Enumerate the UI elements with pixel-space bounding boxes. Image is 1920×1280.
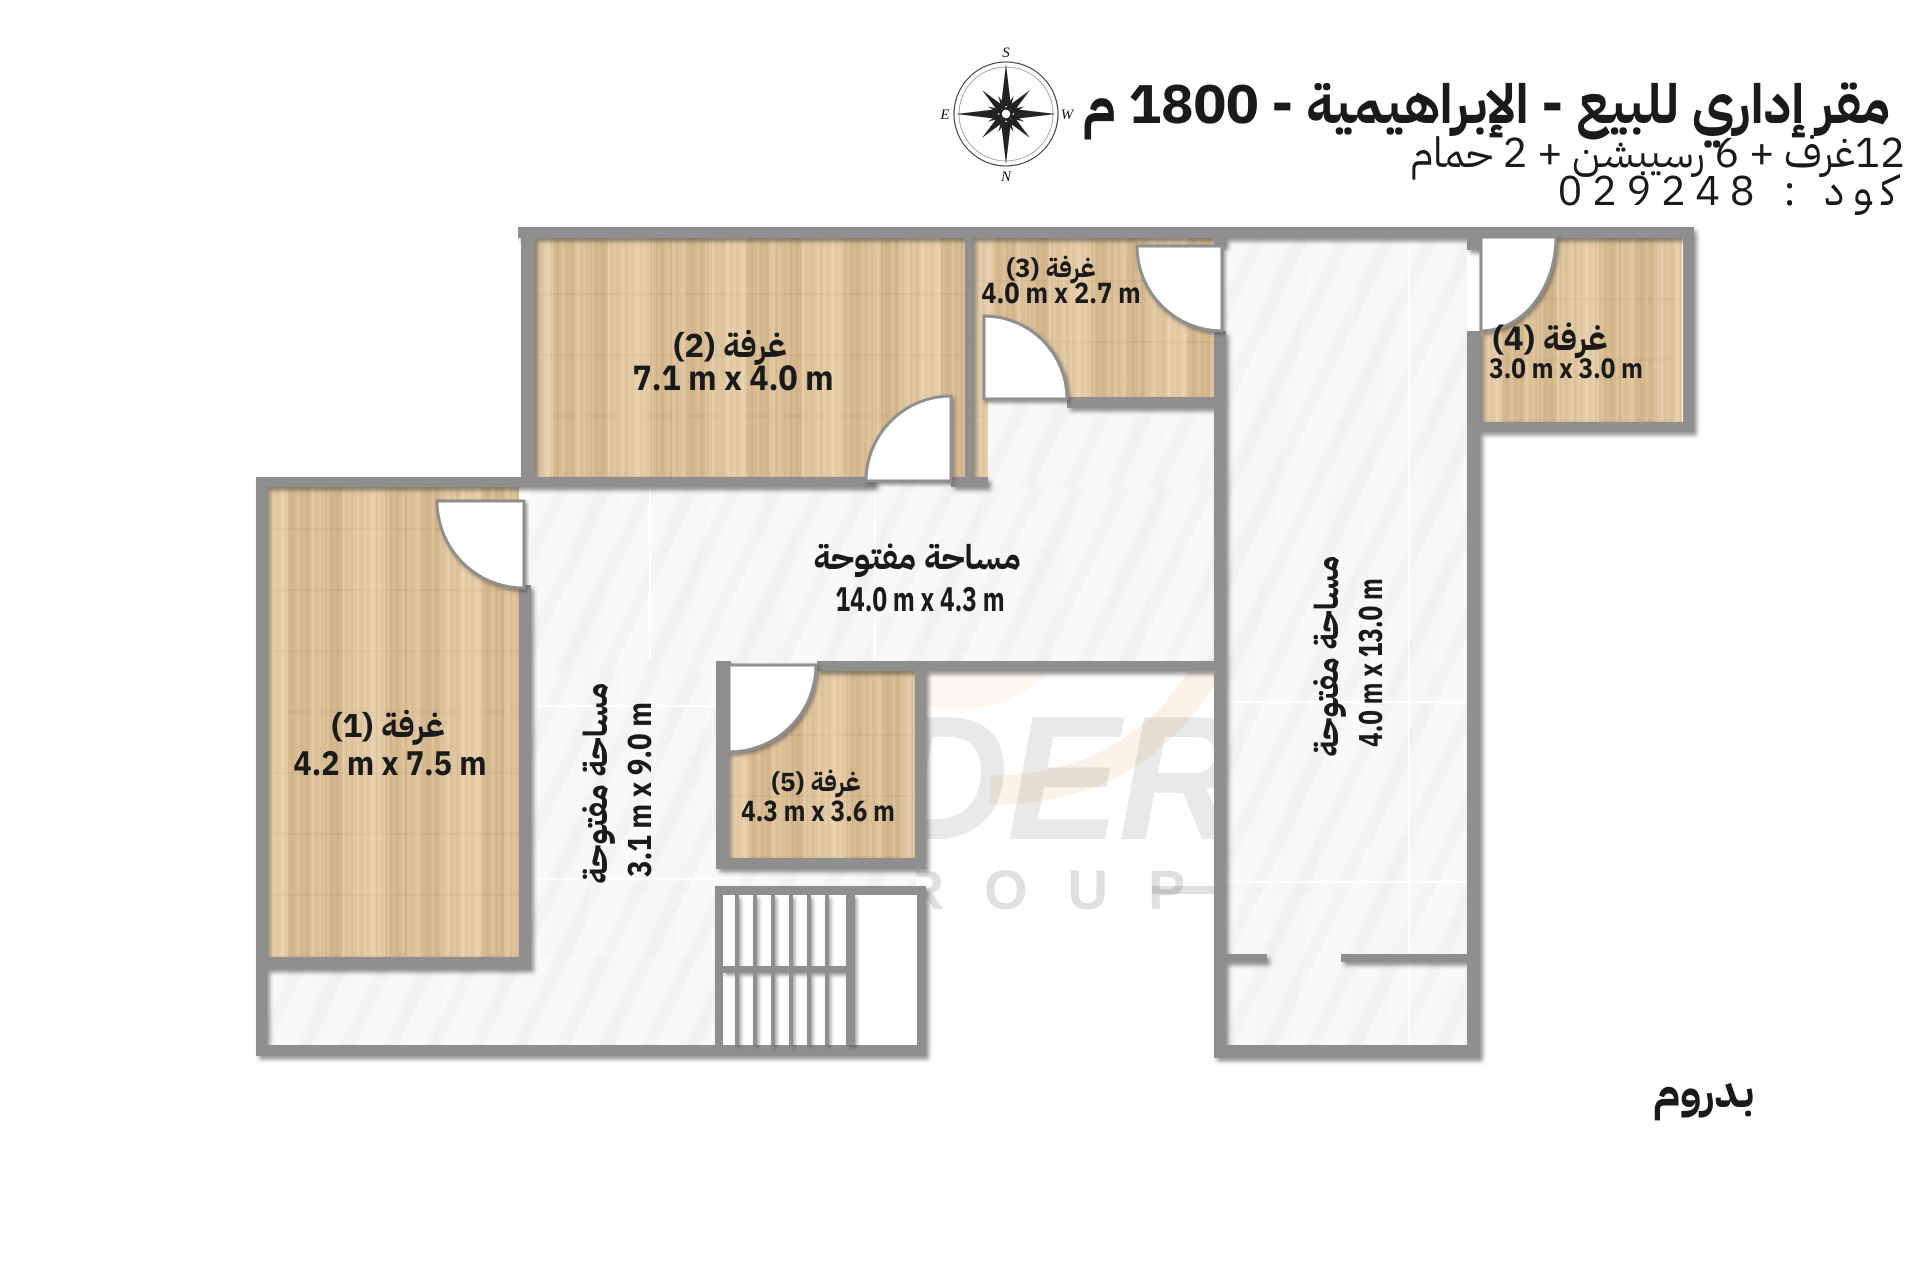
svg-text:E: E	[939, 107, 949, 123]
svg-text:W: W	[1061, 107, 1075, 123]
svg-text:N: N	[1000, 169, 1012, 185]
svg-text:S: S	[1002, 45, 1010, 61]
